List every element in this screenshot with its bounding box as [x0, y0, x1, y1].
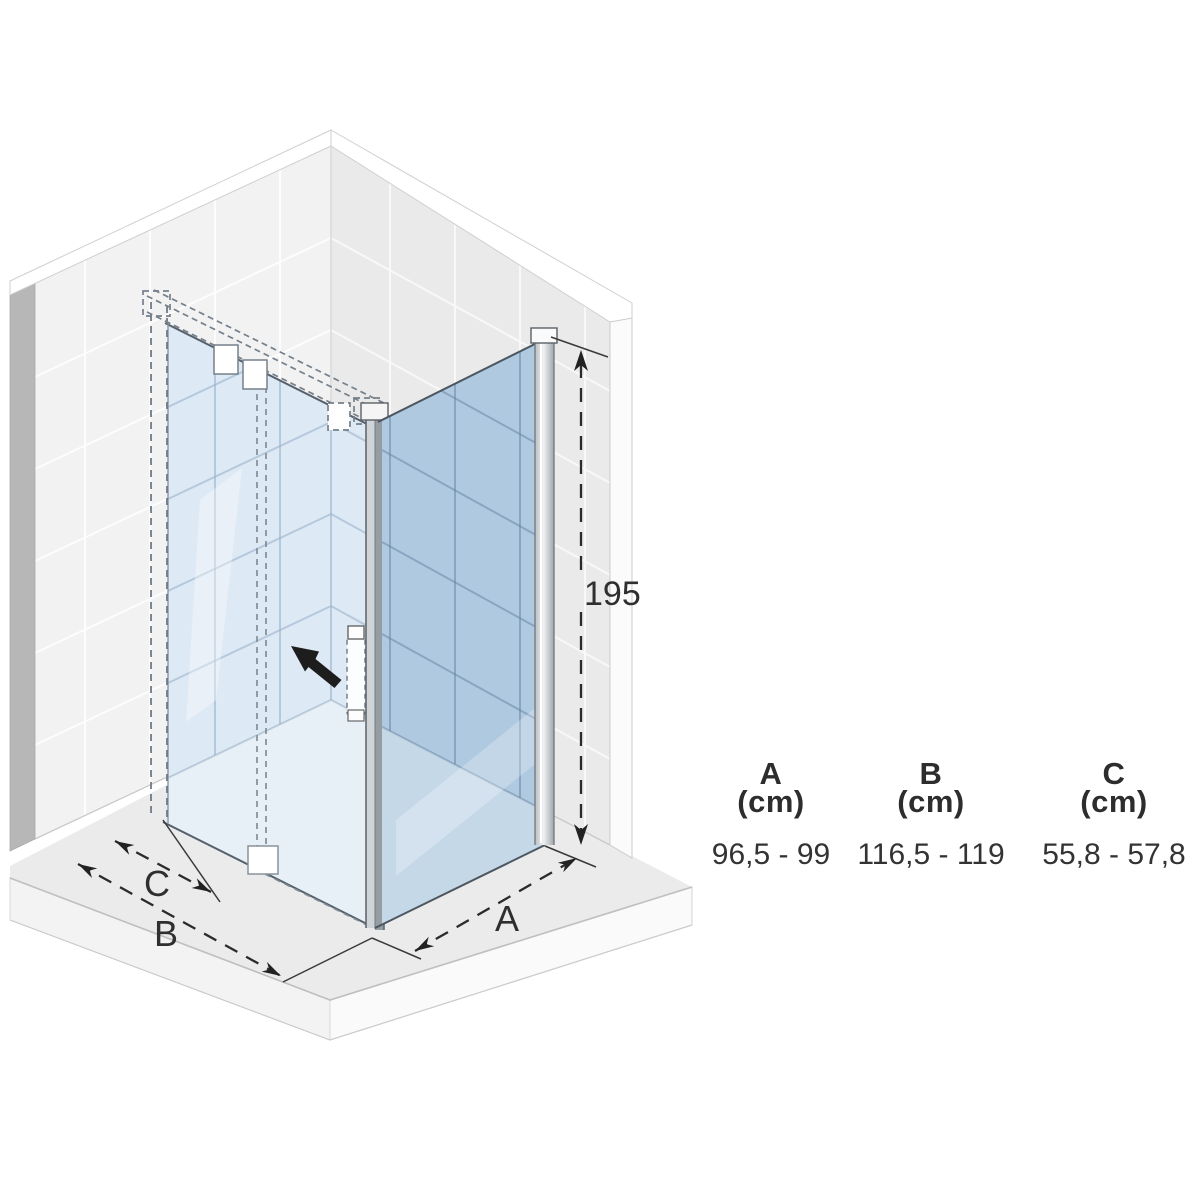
shower-enclosure-dimension-diagram: 195 A B C A (cm) 96,5 - 99 B (cm) 116,5 … [0, 0, 1200, 1200]
dimension-b-label: B [154, 913, 178, 954]
side-panel-wall-profile [531, 328, 557, 845]
height-dimension-label: 195 [584, 575, 641, 613]
corner-post-cap [361, 403, 388, 420]
left-wall-cut-edge [10, 283, 35, 851]
side-panel-glass [375, 339, 545, 928]
side-profile-cap [531, 328, 557, 343]
door-handle [347, 626, 365, 721]
dimension-c-label: C [144, 863, 170, 904]
bottom-guide-bracket [248, 846, 278, 874]
dimension-a-label: A [495, 898, 519, 939]
isometric-drawing: 195 A B C [0, 0, 1200, 1200]
